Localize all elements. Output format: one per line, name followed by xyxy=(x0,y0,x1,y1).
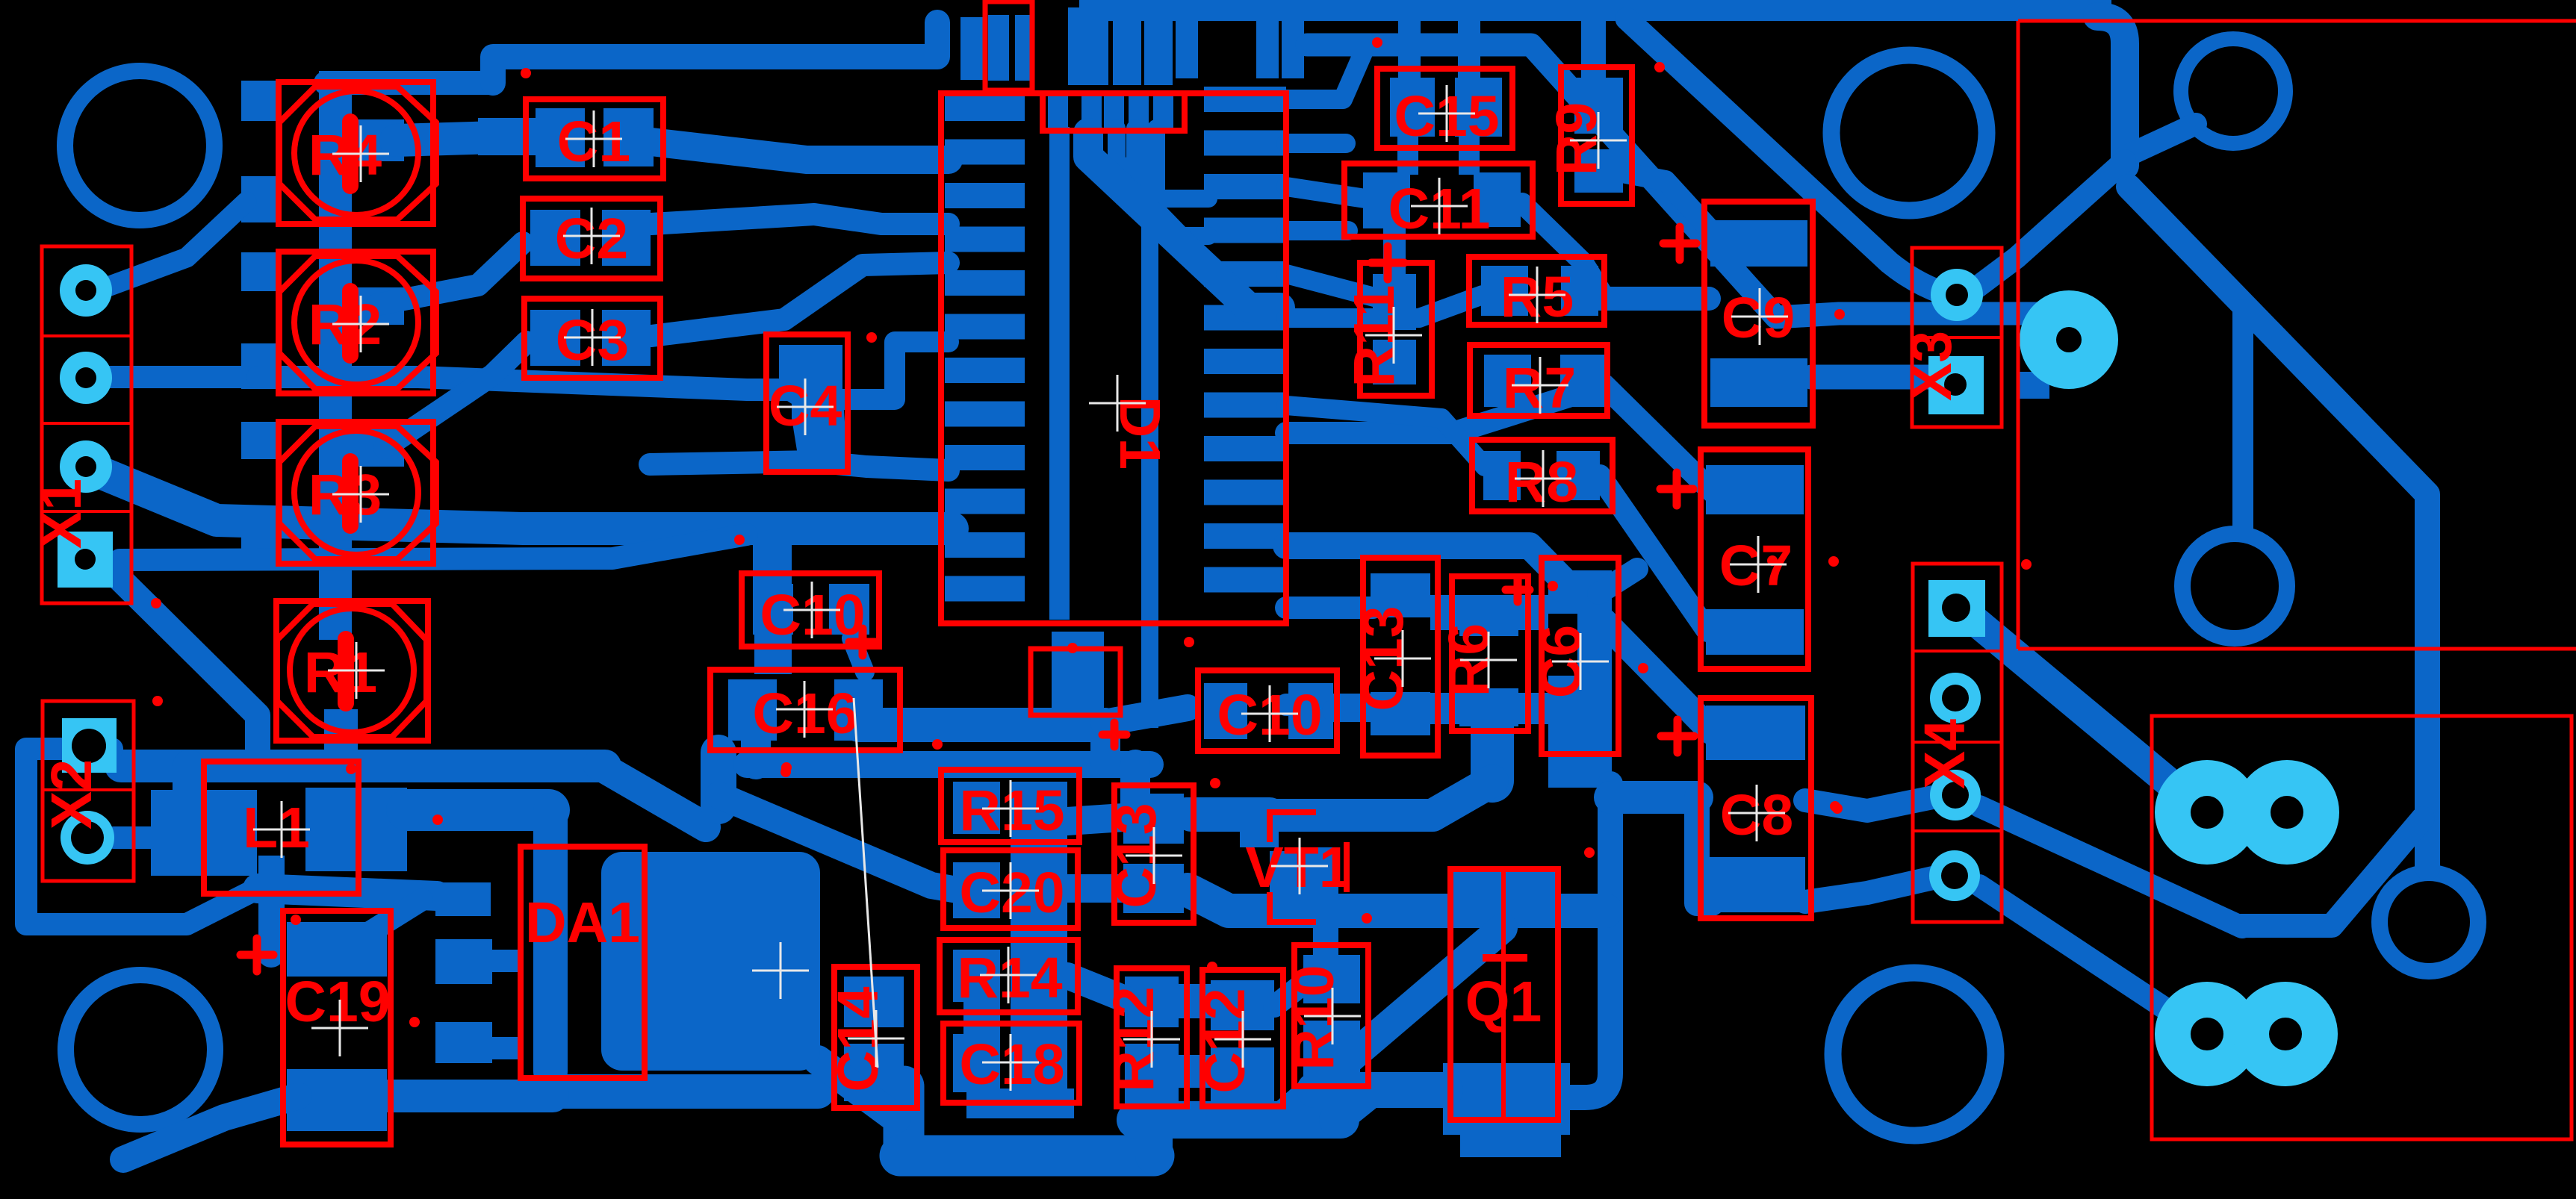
svg-text:C19: C19 xyxy=(285,970,390,1034)
svg-text:VT1: VT1 xyxy=(1245,835,1350,900)
svg-text:R14: R14 xyxy=(957,946,1062,1010)
svg-text:X3: X3 xyxy=(1899,331,1964,401)
svg-text:C20: C20 xyxy=(959,861,1064,925)
svg-text:C9: C9 xyxy=(1722,286,1795,350)
svg-text:L1: L1 xyxy=(243,796,310,860)
svg-text:Q1: Q1 xyxy=(1465,970,1542,1034)
svg-text:R8: R8 xyxy=(1505,450,1578,514)
svg-text:R15: R15 xyxy=(959,779,1064,843)
svg-text:C12: C12 xyxy=(1193,988,1257,1093)
svg-text:DA1: DA1 xyxy=(525,891,640,955)
svg-text:R10: R10 xyxy=(1282,965,1346,1070)
svg-text:X4: X4 xyxy=(1913,719,1977,789)
svg-text:C18: C18 xyxy=(959,1033,1064,1097)
svg-text:X2: X2 xyxy=(40,759,104,829)
svg-text:X1: X1 xyxy=(29,479,93,549)
svg-text:C7: C7 xyxy=(1719,534,1793,598)
